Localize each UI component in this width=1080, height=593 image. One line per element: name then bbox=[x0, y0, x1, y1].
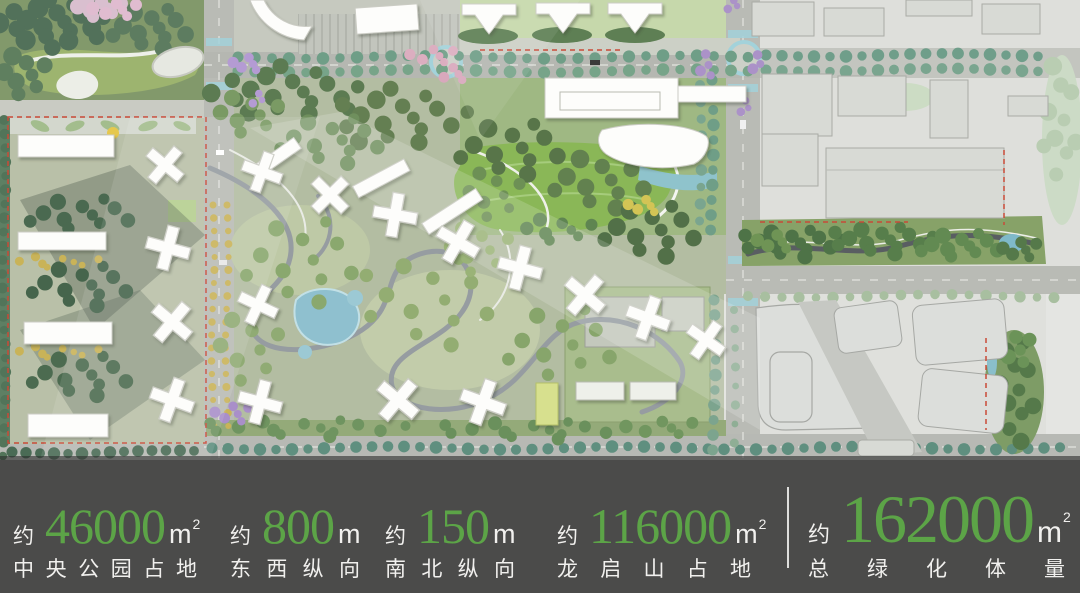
stat-label: 东西纵向 bbox=[230, 559, 360, 580]
site-plan-map bbox=[0, 0, 1080, 460]
stat-unit: m bbox=[493, 519, 516, 550]
stat-value: 116000 bbox=[589, 506, 731, 546]
approx-label: 约 bbox=[385, 520, 406, 550]
stat-value: 800 bbox=[262, 506, 334, 546]
stats-bar: 约 46000 m 2 中央公园占地 约 800 m 东西纵向 约 150 m bbox=[0, 460, 1080, 593]
approx-label: 约 bbox=[808, 517, 830, 549]
page: 约 46000 m 2 中央公园占地 约 800 m 东西纵向 约 150 m bbox=[0, 0, 1080, 593]
stat-value: 46000 bbox=[45, 506, 165, 546]
approx-label: 约 bbox=[557, 520, 578, 550]
stat-east-west-span: 约 800 m 东西纵向 bbox=[230, 506, 360, 580]
stat-unit: m bbox=[735, 519, 758, 550]
stat-value: 150 bbox=[417, 506, 489, 546]
stat-unit: m bbox=[1037, 516, 1062, 550]
stat-unit-sup: 2 bbox=[759, 516, 767, 532]
approx-label: 约 bbox=[230, 520, 251, 550]
stat-unit-sup: 2 bbox=[193, 516, 201, 532]
approx-label: 约 bbox=[13, 520, 34, 550]
stats-divider bbox=[787, 487, 789, 568]
stat-central-park-area: 约 46000 m 2 中央公园占地 bbox=[13, 506, 197, 580]
stat-total-greening-volume: 约 162000 m 2 总绿化体量 bbox=[808, 492, 1065, 580]
stat-label: 南北纵向 bbox=[385, 559, 515, 580]
stat-value: 162000 bbox=[841, 492, 1033, 546]
stat-unit: m bbox=[169, 519, 192, 550]
stat-north-south-span: 约 150 m 南北纵向 bbox=[385, 506, 515, 580]
stat-label: 龙启山占地 bbox=[557, 559, 751, 580]
stat-longqishan-area: 约 116000 m 2 龙启山占地 bbox=[557, 506, 751, 580]
stat-label: 总绿化体量 bbox=[808, 559, 1065, 580]
site-plan-svg bbox=[0, 0, 1080, 460]
stat-label: 中央公园占地 bbox=[13, 559, 197, 580]
stat-unit-sup: 2 bbox=[1063, 509, 1071, 525]
stat-unit: m bbox=[338, 519, 361, 550]
